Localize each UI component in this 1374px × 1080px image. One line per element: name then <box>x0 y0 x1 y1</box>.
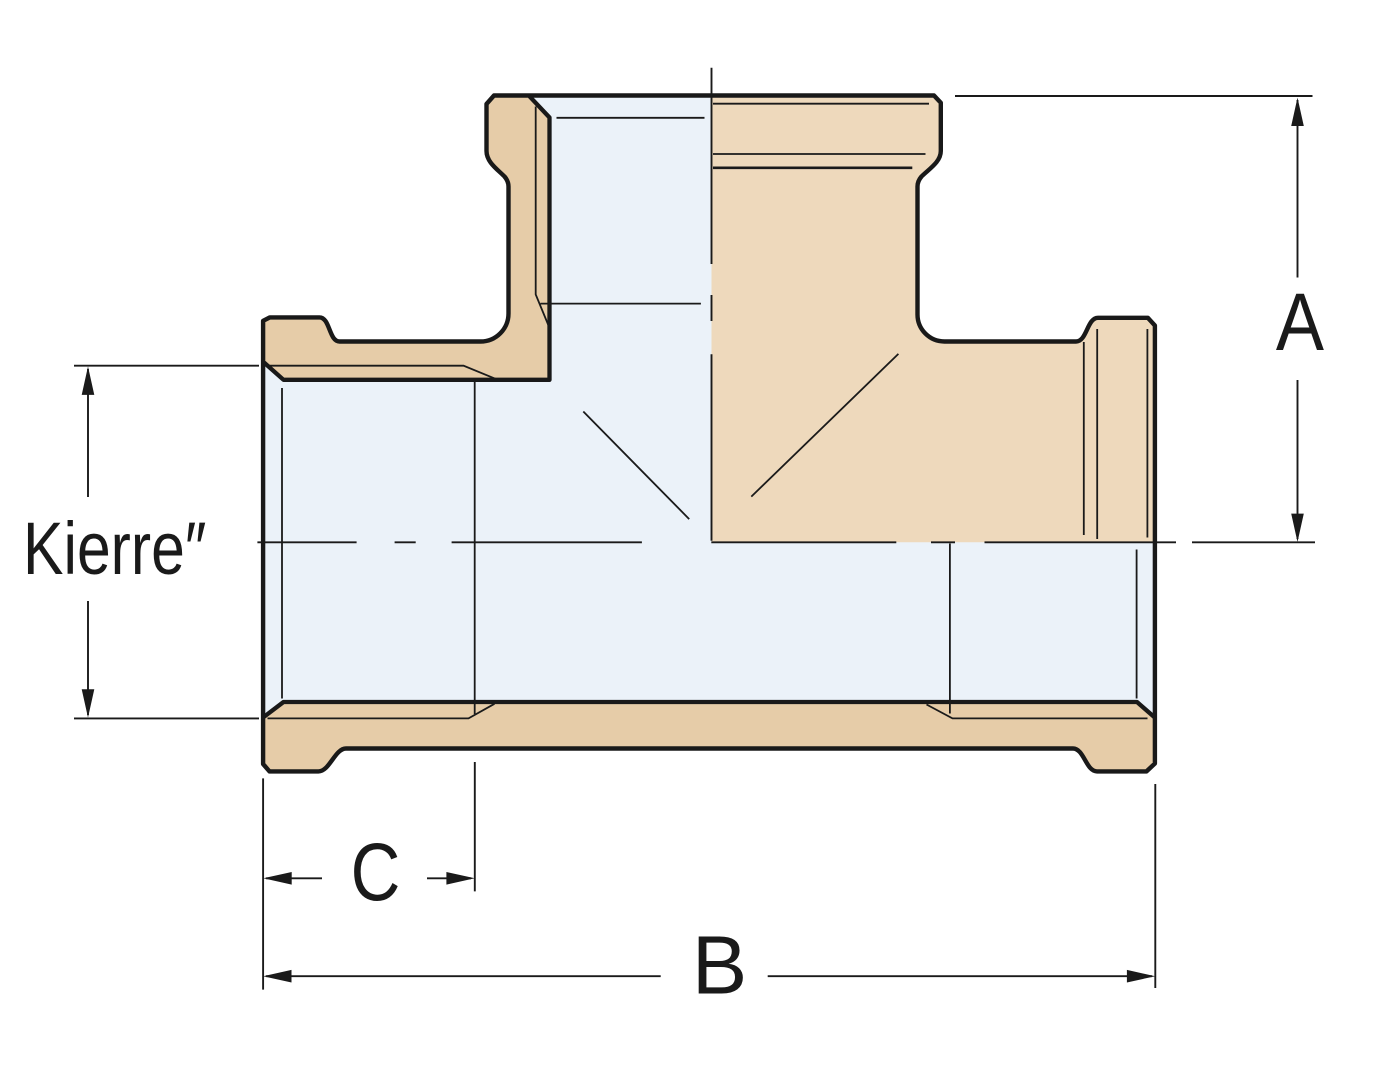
svg-text:C: C <box>351 826 401 918</box>
svg-text:B: B <box>692 919 747 1012</box>
svg-text:Kierre″: Kierre″ <box>23 508 206 590</box>
svg-text:A: A <box>1276 277 1325 368</box>
